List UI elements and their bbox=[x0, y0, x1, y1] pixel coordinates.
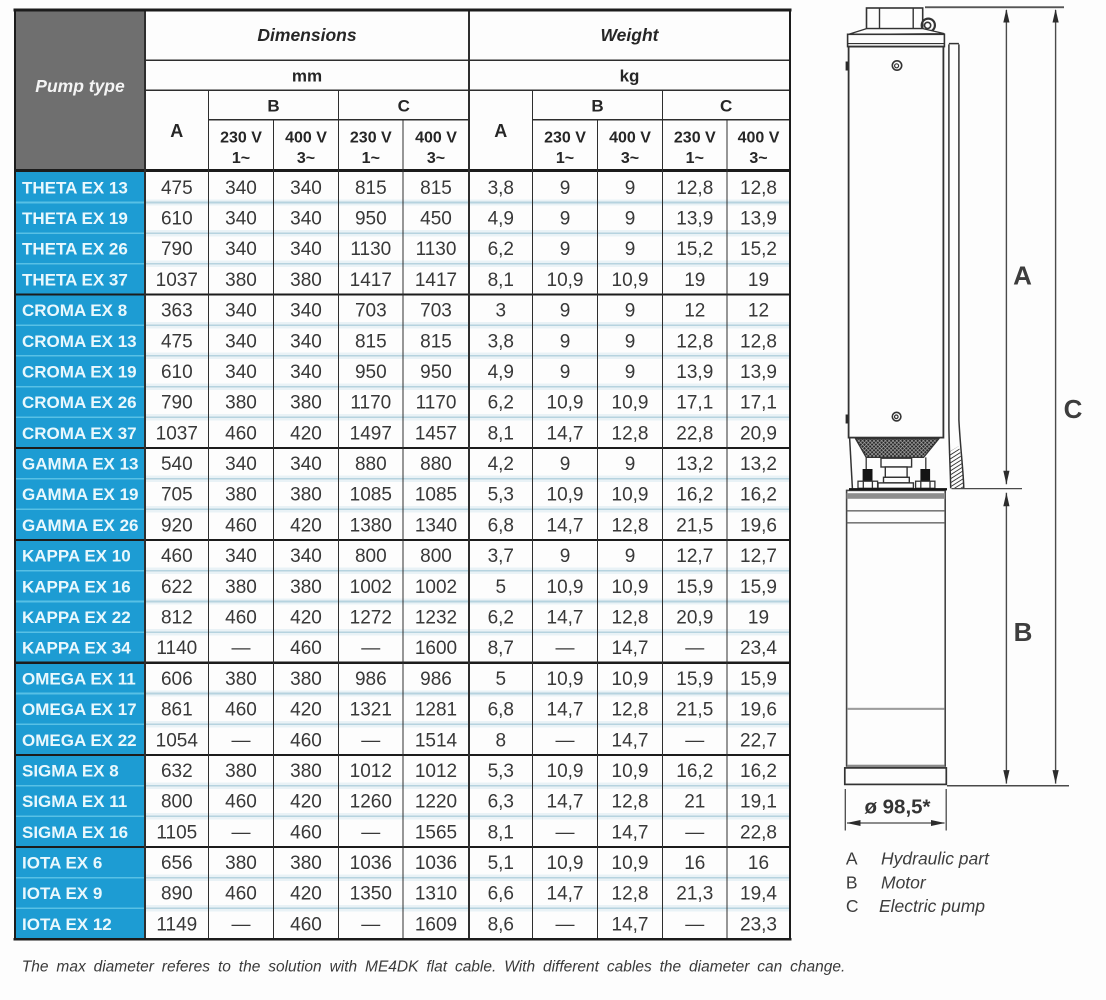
svg-text:815: 815 bbox=[355, 178, 387, 199]
svg-text:CROMA EX 37: CROMA EX 37 bbox=[22, 424, 137, 443]
svg-text:950: 950 bbox=[420, 362, 452, 383]
svg-text:9: 9 bbox=[625, 178, 636, 199]
svg-text:A: A bbox=[846, 849, 858, 869]
svg-text:9: 9 bbox=[625, 362, 636, 383]
svg-text:CROMA EX 26: CROMA EX 26 bbox=[22, 393, 137, 412]
svg-text:1272: 1272 bbox=[350, 608, 392, 629]
svg-text:9: 9 bbox=[625, 301, 636, 322]
svg-text:THETA EX 19: THETA EX 19 bbox=[22, 209, 128, 228]
svg-text:1514: 1514 bbox=[415, 730, 458, 751]
svg-text:1130: 1130 bbox=[416, 239, 457, 260]
svg-text:The max diameter referes to th: The max diameter referes to the solution… bbox=[22, 959, 846, 976]
svg-text:340: 340 bbox=[225, 331, 257, 352]
svg-text:16: 16 bbox=[684, 853, 705, 874]
svg-text:mm: mm bbox=[292, 67, 322, 86]
svg-text:1281: 1281 bbox=[415, 700, 457, 721]
svg-text:12,8: 12,8 bbox=[676, 178, 713, 199]
svg-text:GAMMA EX 19: GAMMA EX 19 bbox=[22, 485, 139, 504]
svg-text:10,9: 10,9 bbox=[612, 577, 649, 598]
svg-text:9: 9 bbox=[560, 178, 571, 199]
svg-text:340: 340 bbox=[290, 454, 322, 475]
svg-text:380: 380 bbox=[290, 669, 322, 690]
svg-text:1140: 1140 bbox=[156, 638, 197, 659]
svg-text:986: 986 bbox=[420, 669, 452, 690]
svg-text:GAMMA EX 13: GAMMA EX 13 bbox=[22, 455, 139, 474]
svg-text:14,7: 14,7 bbox=[612, 638, 649, 659]
svg-text:14,7: 14,7 bbox=[547, 423, 584, 444]
svg-text:3~: 3~ bbox=[297, 150, 315, 167]
svg-text:ø 98,5*: ø 98,5* bbox=[864, 796, 930, 819]
svg-text:540: 540 bbox=[161, 454, 193, 475]
svg-text:14,7: 14,7 bbox=[547, 515, 584, 536]
svg-text:380: 380 bbox=[225, 577, 257, 598]
svg-text:12: 12 bbox=[748, 301, 769, 322]
svg-text:460: 460 bbox=[290, 638, 322, 659]
svg-text:340: 340 bbox=[290, 546, 322, 567]
svg-text:380: 380 bbox=[290, 853, 322, 874]
svg-text:19,4: 19,4 bbox=[740, 884, 777, 905]
svg-text:22,8: 22,8 bbox=[676, 423, 713, 444]
svg-text:Electric pump: Electric pump bbox=[879, 896, 985, 916]
svg-text:5: 5 bbox=[496, 669, 507, 690]
svg-text:230 V: 230 V bbox=[544, 130, 586, 147]
svg-text:14,7: 14,7 bbox=[547, 792, 584, 813]
svg-text:340: 340 bbox=[225, 546, 257, 567]
svg-text:3,8: 3,8 bbox=[488, 178, 514, 199]
svg-text:1002: 1002 bbox=[350, 577, 392, 598]
svg-text:1170: 1170 bbox=[416, 393, 457, 414]
svg-text:10,9: 10,9 bbox=[547, 853, 584, 874]
svg-text:400 V: 400 V bbox=[285, 130, 327, 147]
svg-text:9: 9 bbox=[625, 331, 636, 352]
svg-text:CROMA EX 19: CROMA EX 19 bbox=[22, 363, 137, 382]
svg-text:—: — bbox=[556, 914, 575, 935]
svg-text:1565: 1565 bbox=[415, 822, 457, 843]
svg-text:1012: 1012 bbox=[415, 761, 457, 782]
svg-text:1002: 1002 bbox=[415, 577, 457, 598]
svg-text:420: 420 bbox=[290, 792, 322, 813]
svg-text:340: 340 bbox=[225, 178, 257, 199]
svg-text:—: — bbox=[232, 822, 251, 843]
svg-text:A: A bbox=[494, 121, 507, 141]
svg-text:10,9: 10,9 bbox=[547, 485, 584, 506]
svg-text:1~: 1~ bbox=[556, 150, 574, 167]
svg-text:—: — bbox=[685, 638, 704, 659]
svg-text:475: 475 bbox=[161, 331, 193, 352]
svg-text:12,8: 12,8 bbox=[612, 792, 649, 813]
svg-text:14,7: 14,7 bbox=[612, 822, 649, 843]
svg-text:—: — bbox=[232, 914, 251, 935]
svg-text:—: — bbox=[232, 730, 251, 751]
svg-text:16,2: 16,2 bbox=[676, 485, 713, 506]
svg-text:790: 790 bbox=[161, 239, 193, 260]
svg-text:12,7: 12,7 bbox=[740, 546, 777, 567]
svg-text:10,9: 10,9 bbox=[612, 669, 649, 690]
svg-text:—: — bbox=[232, 638, 251, 659]
svg-text:230 V: 230 V bbox=[350, 130, 392, 147]
svg-text:C: C bbox=[846, 896, 859, 916]
svg-text:10,9: 10,9 bbox=[547, 393, 584, 414]
svg-text:THETA EX 26: THETA EX 26 bbox=[22, 240, 128, 259]
svg-text:340: 340 bbox=[225, 239, 257, 260]
svg-text:800: 800 bbox=[161, 792, 193, 813]
svg-text:920: 920 bbox=[161, 515, 193, 536]
svg-text:986: 986 bbox=[355, 669, 387, 690]
svg-text:8,1: 8,1 bbox=[488, 822, 514, 843]
svg-text:15,9: 15,9 bbox=[676, 669, 713, 690]
svg-text:9: 9 bbox=[560, 331, 571, 352]
svg-text:SIGMA EX 11: SIGMA EX 11 bbox=[22, 792, 127, 811]
svg-text:—: — bbox=[556, 638, 575, 659]
svg-text:5,3: 5,3 bbox=[488, 485, 514, 506]
svg-text:KAPPA EX 16: KAPPA EX 16 bbox=[22, 577, 131, 596]
svg-text:9: 9 bbox=[625, 454, 636, 475]
svg-text:420: 420 bbox=[290, 884, 322, 905]
svg-text:340: 340 bbox=[225, 301, 257, 322]
svg-text:703: 703 bbox=[355, 301, 387, 322]
svg-text:9: 9 bbox=[560, 239, 571, 260]
svg-text:9: 9 bbox=[560, 546, 571, 567]
svg-text:380: 380 bbox=[290, 485, 322, 506]
svg-text:1310: 1310 bbox=[415, 884, 457, 905]
svg-text:22,7: 22,7 bbox=[740, 730, 777, 751]
svg-text:12,8: 12,8 bbox=[740, 331, 777, 352]
svg-text:610: 610 bbox=[161, 209, 193, 230]
svg-text:8,7: 8,7 bbox=[488, 638, 514, 659]
svg-text:IOTA EX 6: IOTA EX 6 bbox=[22, 854, 102, 873]
svg-text:460: 460 bbox=[290, 914, 322, 935]
svg-text:—: — bbox=[361, 638, 380, 659]
svg-text:SIGMA EX 16: SIGMA EX 16 bbox=[22, 823, 128, 842]
svg-text:kg: kg bbox=[620, 67, 640, 86]
svg-text:14,7: 14,7 bbox=[547, 884, 584, 905]
svg-text:230 V: 230 V bbox=[220, 130, 262, 147]
svg-text:610: 610 bbox=[161, 362, 193, 383]
svg-text:703: 703 bbox=[420, 301, 452, 322]
svg-text:230 V: 230 V bbox=[674, 130, 716, 147]
svg-text:460: 460 bbox=[225, 608, 257, 629]
svg-text:16,2: 16,2 bbox=[740, 485, 777, 506]
svg-text:IOTA EX 12: IOTA EX 12 bbox=[22, 915, 112, 934]
svg-text:6,6: 6,6 bbox=[488, 884, 514, 905]
svg-text:606: 606 bbox=[161, 669, 193, 690]
svg-text:12,7: 12,7 bbox=[676, 546, 713, 567]
svg-text:KAPPA EX 22: KAPPA EX 22 bbox=[22, 608, 131, 627]
svg-text:19: 19 bbox=[748, 608, 769, 629]
svg-text:1380: 1380 bbox=[350, 515, 392, 536]
svg-text:21: 21 bbox=[684, 792, 705, 813]
svg-text:19,6: 19,6 bbox=[740, 515, 777, 536]
svg-text:12,8: 12,8 bbox=[612, 423, 649, 444]
svg-text:1232: 1232 bbox=[415, 608, 457, 629]
svg-text:12,8: 12,8 bbox=[740, 178, 777, 199]
svg-text:12,8: 12,8 bbox=[612, 608, 649, 629]
svg-text:GAMMA EX 26: GAMMA EX 26 bbox=[22, 516, 139, 535]
svg-text:—: — bbox=[556, 822, 575, 843]
svg-text:Dimensions: Dimensions bbox=[257, 25, 356, 45]
svg-text:950: 950 bbox=[355, 362, 387, 383]
svg-text:1037: 1037 bbox=[156, 423, 198, 444]
svg-text:460: 460 bbox=[290, 822, 322, 843]
svg-text:1~: 1~ bbox=[686, 150, 704, 167]
svg-text:14,7: 14,7 bbox=[547, 608, 584, 629]
svg-text:14,7: 14,7 bbox=[612, 914, 649, 935]
svg-text:12,8: 12,8 bbox=[612, 515, 649, 536]
svg-text:12: 12 bbox=[684, 301, 705, 322]
svg-text:6,2: 6,2 bbox=[488, 239, 514, 260]
svg-text:460: 460 bbox=[161, 546, 193, 567]
svg-text:—: — bbox=[685, 730, 704, 751]
svg-text:380: 380 bbox=[290, 761, 322, 782]
svg-text:460: 460 bbox=[225, 515, 257, 536]
svg-text:10,9: 10,9 bbox=[612, 393, 649, 414]
svg-text:3~: 3~ bbox=[621, 150, 639, 167]
svg-text:400 V: 400 V bbox=[738, 130, 780, 147]
svg-text:CROMA EX 13: CROMA EX 13 bbox=[22, 332, 137, 351]
svg-text:4,9: 4,9 bbox=[488, 362, 514, 383]
svg-text:3,8: 3,8 bbox=[488, 331, 514, 352]
svg-text:380: 380 bbox=[225, 669, 257, 690]
svg-text:380: 380 bbox=[225, 761, 257, 782]
svg-text:Pump type: Pump type bbox=[35, 76, 125, 96]
svg-text:12,8: 12,8 bbox=[676, 331, 713, 352]
svg-text:1012: 1012 bbox=[350, 761, 392, 782]
svg-text:1085: 1085 bbox=[415, 485, 457, 506]
svg-text:OMEGA EX 17: OMEGA EX 17 bbox=[22, 700, 137, 719]
svg-text:10,9: 10,9 bbox=[547, 270, 584, 291]
svg-text:—: — bbox=[685, 914, 704, 935]
svg-text:8,1: 8,1 bbox=[488, 423, 514, 444]
svg-text:19,6: 19,6 bbox=[740, 700, 777, 721]
svg-text:1105: 1105 bbox=[156, 822, 197, 843]
svg-text:9: 9 bbox=[560, 362, 571, 383]
svg-text:10,9: 10,9 bbox=[547, 761, 584, 782]
svg-text:15,9: 15,9 bbox=[740, 577, 777, 598]
svg-text:1497: 1497 bbox=[350, 423, 392, 444]
svg-text:460: 460 bbox=[225, 700, 257, 721]
svg-text:13,2: 13,2 bbox=[676, 454, 713, 475]
svg-text:6,8: 6,8 bbox=[488, 515, 514, 536]
svg-text:8,6: 8,6 bbox=[488, 914, 514, 935]
svg-text:B: B bbox=[1014, 617, 1033, 647]
svg-text:420: 420 bbox=[290, 700, 322, 721]
svg-text:14,7: 14,7 bbox=[547, 700, 584, 721]
svg-text:23,3: 23,3 bbox=[740, 914, 777, 935]
svg-text:—: — bbox=[361, 914, 380, 935]
svg-text:632: 632 bbox=[161, 761, 193, 782]
svg-text:450: 450 bbox=[420, 209, 452, 230]
svg-text:15,9: 15,9 bbox=[676, 577, 713, 598]
svg-text:10,9: 10,9 bbox=[612, 270, 649, 291]
svg-text:21,5: 21,5 bbox=[676, 515, 713, 536]
svg-text:380: 380 bbox=[290, 577, 322, 598]
svg-text:IOTA EX 9: IOTA EX 9 bbox=[22, 884, 102, 903]
svg-text:1~: 1~ bbox=[362, 150, 380, 167]
svg-text:B: B bbox=[591, 97, 603, 116]
svg-text:380: 380 bbox=[225, 393, 257, 414]
svg-text:21,5: 21,5 bbox=[676, 700, 713, 721]
svg-text:6,3: 6,3 bbox=[488, 792, 514, 813]
svg-text:—: — bbox=[556, 730, 575, 751]
svg-text:20,9: 20,9 bbox=[740, 423, 777, 444]
svg-text:1036: 1036 bbox=[350, 853, 392, 874]
svg-text:9: 9 bbox=[560, 209, 571, 230]
svg-text:1457: 1457 bbox=[415, 423, 457, 444]
svg-text:812: 812 bbox=[161, 608, 193, 629]
svg-text:380: 380 bbox=[225, 853, 257, 874]
svg-text:460: 460 bbox=[225, 423, 257, 444]
svg-text:22,8: 22,8 bbox=[740, 822, 777, 843]
svg-text:13,9: 13,9 bbox=[676, 362, 713, 383]
svg-text:622: 622 bbox=[161, 577, 193, 598]
svg-text:20,9: 20,9 bbox=[676, 608, 713, 629]
svg-text:340: 340 bbox=[290, 178, 322, 199]
svg-text:380: 380 bbox=[290, 393, 322, 414]
svg-text:1~: 1~ bbox=[232, 150, 250, 167]
svg-text:9: 9 bbox=[625, 209, 636, 230]
svg-text:6,2: 6,2 bbox=[488, 608, 514, 629]
svg-text:8: 8 bbox=[496, 730, 507, 751]
svg-text:1417: 1417 bbox=[350, 270, 392, 291]
svg-text:380: 380 bbox=[290, 270, 322, 291]
svg-text:3~: 3~ bbox=[427, 150, 445, 167]
svg-text:C: C bbox=[398, 97, 410, 116]
svg-text:9: 9 bbox=[625, 546, 636, 567]
svg-text:OMEGA EX 22: OMEGA EX 22 bbox=[22, 731, 137, 750]
svg-text:B: B bbox=[267, 97, 279, 116]
svg-text:380: 380 bbox=[225, 270, 257, 291]
svg-text:475: 475 bbox=[161, 178, 193, 199]
svg-text:19: 19 bbox=[748, 270, 769, 291]
svg-text:15,2: 15,2 bbox=[740, 239, 777, 260]
svg-text:9: 9 bbox=[625, 239, 636, 260]
svg-text:B: B bbox=[846, 872, 858, 892]
svg-text:4,9: 4,9 bbox=[488, 209, 514, 230]
svg-text:9: 9 bbox=[560, 454, 571, 475]
svg-text:340: 340 bbox=[290, 362, 322, 383]
svg-text:Hydraulic part: Hydraulic part bbox=[881, 849, 990, 869]
svg-text:815: 815 bbox=[355, 331, 387, 352]
svg-text:9: 9 bbox=[560, 301, 571, 322]
svg-text:16: 16 bbox=[748, 853, 769, 874]
svg-text:1085: 1085 bbox=[350, 485, 392, 506]
svg-text:950: 950 bbox=[355, 209, 387, 230]
svg-text:380: 380 bbox=[225, 485, 257, 506]
svg-text:1321: 1321 bbox=[350, 700, 392, 721]
svg-text:340: 340 bbox=[225, 362, 257, 383]
svg-text:15,9: 15,9 bbox=[740, 669, 777, 690]
svg-text:1149: 1149 bbox=[156, 914, 197, 935]
svg-text:17,1: 17,1 bbox=[676, 393, 713, 414]
svg-text:340: 340 bbox=[225, 209, 257, 230]
svg-text:16,2: 16,2 bbox=[676, 761, 713, 782]
svg-text:1037: 1037 bbox=[156, 270, 198, 291]
svg-text:1260: 1260 bbox=[350, 792, 392, 813]
svg-text:4,2: 4,2 bbox=[488, 454, 514, 475]
svg-text:A: A bbox=[170, 121, 183, 141]
svg-text:THETA EX 13: THETA EX 13 bbox=[22, 178, 128, 197]
svg-text:5,3: 5,3 bbox=[488, 761, 514, 782]
svg-text:1609: 1609 bbox=[415, 914, 457, 935]
svg-text:16,2: 16,2 bbox=[740, 761, 777, 782]
svg-text:400 V: 400 V bbox=[609, 130, 651, 147]
svg-text:C: C bbox=[1064, 394, 1083, 424]
svg-text:1170: 1170 bbox=[350, 393, 391, 414]
svg-text:340: 340 bbox=[290, 209, 322, 230]
svg-text:10,9: 10,9 bbox=[612, 853, 649, 874]
svg-text:OMEGA EX 11: OMEGA EX 11 bbox=[22, 669, 136, 688]
svg-text:705: 705 bbox=[161, 485, 193, 506]
svg-text:Motor: Motor bbox=[881, 872, 927, 892]
svg-text:14,7: 14,7 bbox=[612, 730, 649, 751]
svg-text:460: 460 bbox=[225, 792, 257, 813]
svg-text:5,1: 5,1 bbox=[488, 853, 514, 874]
svg-text:Weight: Weight bbox=[600, 25, 659, 45]
svg-text:6,2: 6,2 bbox=[488, 393, 514, 414]
svg-text:17,1: 17,1 bbox=[740, 393, 777, 414]
svg-text:C: C bbox=[720, 97, 732, 116]
svg-text:340: 340 bbox=[290, 331, 322, 352]
svg-text:21,3: 21,3 bbox=[676, 884, 713, 905]
svg-text:363: 363 bbox=[161, 301, 193, 322]
svg-text:10,9: 10,9 bbox=[612, 485, 649, 506]
svg-text:8,1: 8,1 bbox=[488, 270, 514, 291]
svg-text:5: 5 bbox=[496, 577, 507, 598]
svg-text:815: 815 bbox=[420, 331, 452, 352]
svg-text:890: 890 bbox=[161, 884, 193, 905]
svg-text:420: 420 bbox=[290, 608, 322, 629]
svg-text:1054: 1054 bbox=[156, 730, 199, 751]
svg-text:1417: 1417 bbox=[415, 270, 457, 291]
svg-text:10,9: 10,9 bbox=[612, 761, 649, 782]
svg-text:340: 340 bbox=[290, 239, 322, 260]
svg-text:800: 800 bbox=[355, 546, 387, 567]
svg-text:19,1: 19,1 bbox=[740, 792, 777, 813]
svg-text:420: 420 bbox=[290, 515, 322, 536]
svg-text:SIGMA EX 8: SIGMA EX 8 bbox=[22, 762, 119, 781]
svg-text:KAPPA EX 10: KAPPA EX 10 bbox=[22, 547, 131, 566]
svg-text:KAPPA EX 34: KAPPA EX 34 bbox=[22, 639, 131, 658]
svg-text:—: — bbox=[361, 822, 380, 843]
svg-text:CROMA EX 8: CROMA EX 8 bbox=[22, 301, 127, 320]
svg-text:12,8: 12,8 bbox=[612, 700, 649, 721]
svg-text:340: 340 bbox=[290, 301, 322, 322]
svg-text:400 V: 400 V bbox=[415, 130, 457, 147]
svg-text:3,7: 3,7 bbox=[488, 546, 514, 567]
svg-text:1340: 1340 bbox=[415, 515, 457, 536]
svg-text:1220: 1220 bbox=[415, 792, 457, 813]
svg-text:15,2: 15,2 bbox=[676, 239, 713, 260]
svg-text:3~: 3~ bbox=[749, 150, 767, 167]
svg-text:—: — bbox=[685, 822, 704, 843]
svg-text:656: 656 bbox=[161, 853, 193, 874]
svg-text:800: 800 bbox=[420, 546, 452, 567]
svg-text:A: A bbox=[1013, 261, 1032, 291]
svg-text:13,9: 13,9 bbox=[740, 209, 777, 230]
svg-text:460: 460 bbox=[290, 730, 322, 751]
svg-text:861: 861 bbox=[161, 700, 193, 721]
svg-text:880: 880 bbox=[420, 454, 452, 475]
svg-text:420: 420 bbox=[290, 423, 322, 444]
svg-text:460: 460 bbox=[225, 884, 257, 905]
svg-text:880: 880 bbox=[355, 454, 387, 475]
svg-text:13,9: 13,9 bbox=[740, 362, 777, 383]
svg-text:THETA EX 37: THETA EX 37 bbox=[22, 270, 128, 289]
svg-text:13,2: 13,2 bbox=[740, 454, 777, 475]
svg-text:13,9: 13,9 bbox=[676, 209, 713, 230]
svg-text:815: 815 bbox=[420, 178, 452, 199]
svg-text:1600: 1600 bbox=[415, 638, 457, 659]
